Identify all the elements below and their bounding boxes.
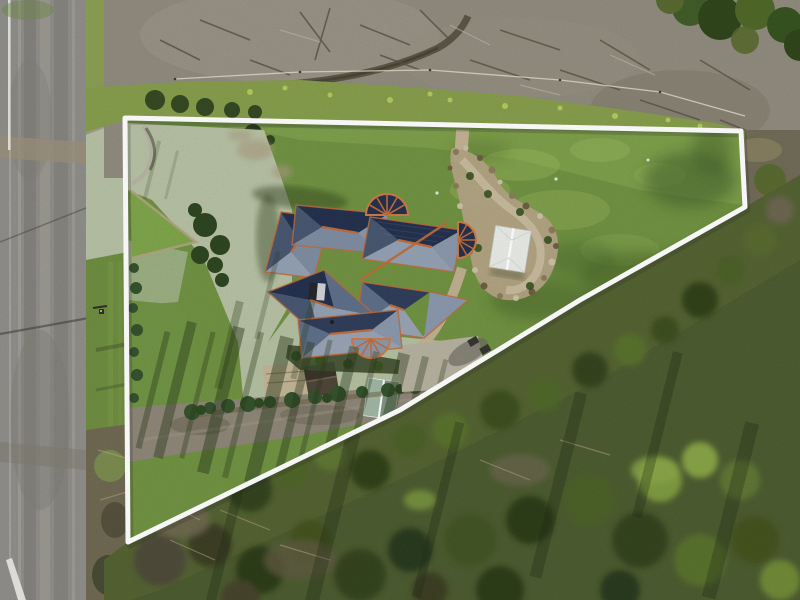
- aerial-photo-canvas: [0, 0, 800, 600]
- aerial-photo: [0, 0, 800, 600]
- grain-light: [0, 0, 800, 600]
